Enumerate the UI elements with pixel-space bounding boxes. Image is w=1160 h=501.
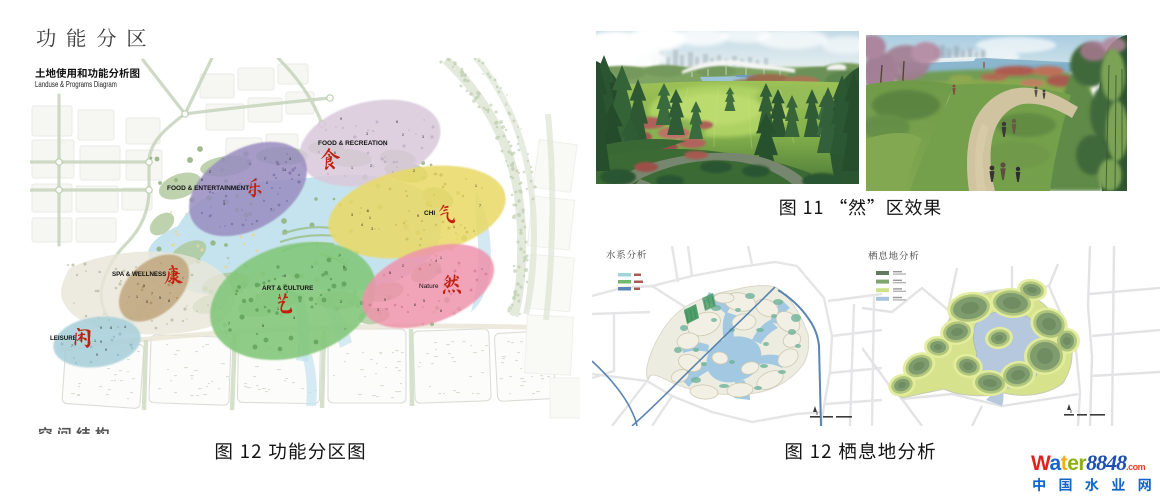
svg-text:8: 8 — [284, 274, 286, 278]
svg-text:1: 1 — [282, 168, 284, 172]
svg-text:4: 4 — [223, 202, 225, 206]
svg-text:6: 6 — [414, 303, 416, 307]
svg-text:4: 4 — [293, 316, 295, 320]
svg-text:2: 2 — [340, 300, 342, 304]
svg-text:1: 1 — [453, 225, 455, 229]
svg-text:7: 7 — [71, 344, 73, 348]
svg-text:9: 9 — [100, 340, 102, 344]
svg-text:4: 4 — [284, 168, 286, 172]
svg-text:9: 9 — [340, 117, 342, 121]
svg-text:2: 2 — [370, 164, 372, 168]
svg-text:6: 6 — [343, 265, 345, 269]
svg-text:7: 7 — [228, 322, 230, 326]
svg-text:6: 6 — [334, 151, 336, 155]
svg-text:9: 9 — [96, 353, 98, 357]
svg-text:3: 3 — [377, 308, 379, 312]
svg-text:FOOD & ENTERTAINMENT: FOOD & ENTERTAINMENT — [167, 185, 249, 192]
svg-text:1: 1 — [440, 256, 442, 260]
svg-text:5: 5 — [389, 271, 391, 275]
svg-text:LEISURE: LEISURE — [50, 335, 77, 342]
svg-text:ART & CULTURE: ART & CULTURE — [262, 285, 314, 292]
svg-text:1: 1 — [94, 339, 96, 343]
svg-text:1: 1 — [369, 216, 371, 220]
svg-text:3: 3 — [366, 132, 368, 136]
svg-text:2: 2 — [402, 264, 404, 268]
svg-text:8: 8 — [110, 326, 112, 330]
svg-text:5: 5 — [159, 296, 161, 300]
svg-text:6: 6 — [440, 309, 442, 313]
svg-text:9: 9 — [100, 326, 102, 330]
svg-text:4: 4 — [124, 325, 126, 329]
svg-text:7: 7 — [270, 208, 272, 212]
svg-text:6: 6 — [367, 209, 369, 213]
svg-text:Nature: Nature — [419, 283, 439, 290]
svg-text:1: 1 — [277, 307, 279, 311]
svg-text:2: 2 — [402, 133, 404, 137]
svg-text:1: 1 — [351, 166, 353, 170]
svg-text:1: 1 — [475, 184, 477, 188]
svg-text:9: 9 — [384, 298, 386, 302]
svg-text:8: 8 — [201, 178, 203, 182]
svg-text:3: 3 — [371, 227, 373, 231]
svg-text:FOOD & RECREATION: FOOD & RECREATION — [318, 140, 388, 147]
svg-text:5: 5 — [423, 299, 425, 303]
svg-text:3: 3 — [422, 135, 424, 139]
svg-text:4: 4 — [435, 259, 437, 263]
svg-text:7: 7 — [264, 157, 266, 161]
svg-text:5: 5 — [262, 324, 264, 328]
svg-text:SPA & WELLNESS: SPA & WELLNESS — [112, 271, 166, 278]
svg-text:2: 2 — [266, 181, 268, 185]
svg-text:4: 4 — [361, 223, 363, 227]
svg-text:2: 2 — [209, 170, 211, 174]
svg-text:9: 9 — [105, 348, 107, 352]
svg-text:5: 5 — [146, 300, 148, 304]
svg-text:1: 1 — [136, 295, 138, 299]
svg-text:8: 8 — [168, 299, 170, 303]
svg-text:1: 1 — [311, 265, 313, 269]
svg-text:4: 4 — [289, 157, 291, 161]
svg-text:7: 7 — [151, 292, 153, 296]
svg-text:CHI: CHI — [424, 210, 435, 217]
svg-text:8: 8 — [396, 120, 398, 124]
svg-text:9: 9 — [417, 214, 419, 218]
svg-text:7: 7 — [479, 204, 481, 208]
svg-text:2: 2 — [413, 169, 415, 173]
svg-text:5: 5 — [143, 284, 145, 288]
svg-text:3: 3 — [351, 213, 353, 217]
